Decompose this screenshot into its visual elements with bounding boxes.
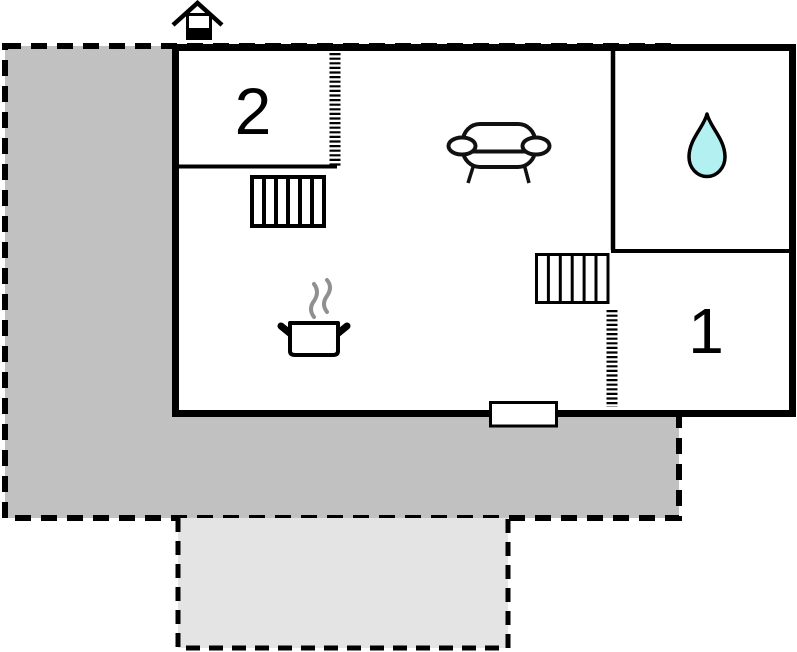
- staircase-icon-upper: [252, 177, 324, 226]
- room-label-1: 1: [688, 295, 724, 367]
- floor-plan: 2 1: [0, 0, 797, 652]
- chimney-icon: [173, 3, 222, 40]
- terrace-light: [178, 518, 508, 648]
- room-label-2: 2: [235, 74, 272, 148]
- staircase-icon-lower: [537, 255, 609, 303]
- entrance-step: [491, 403, 557, 427]
